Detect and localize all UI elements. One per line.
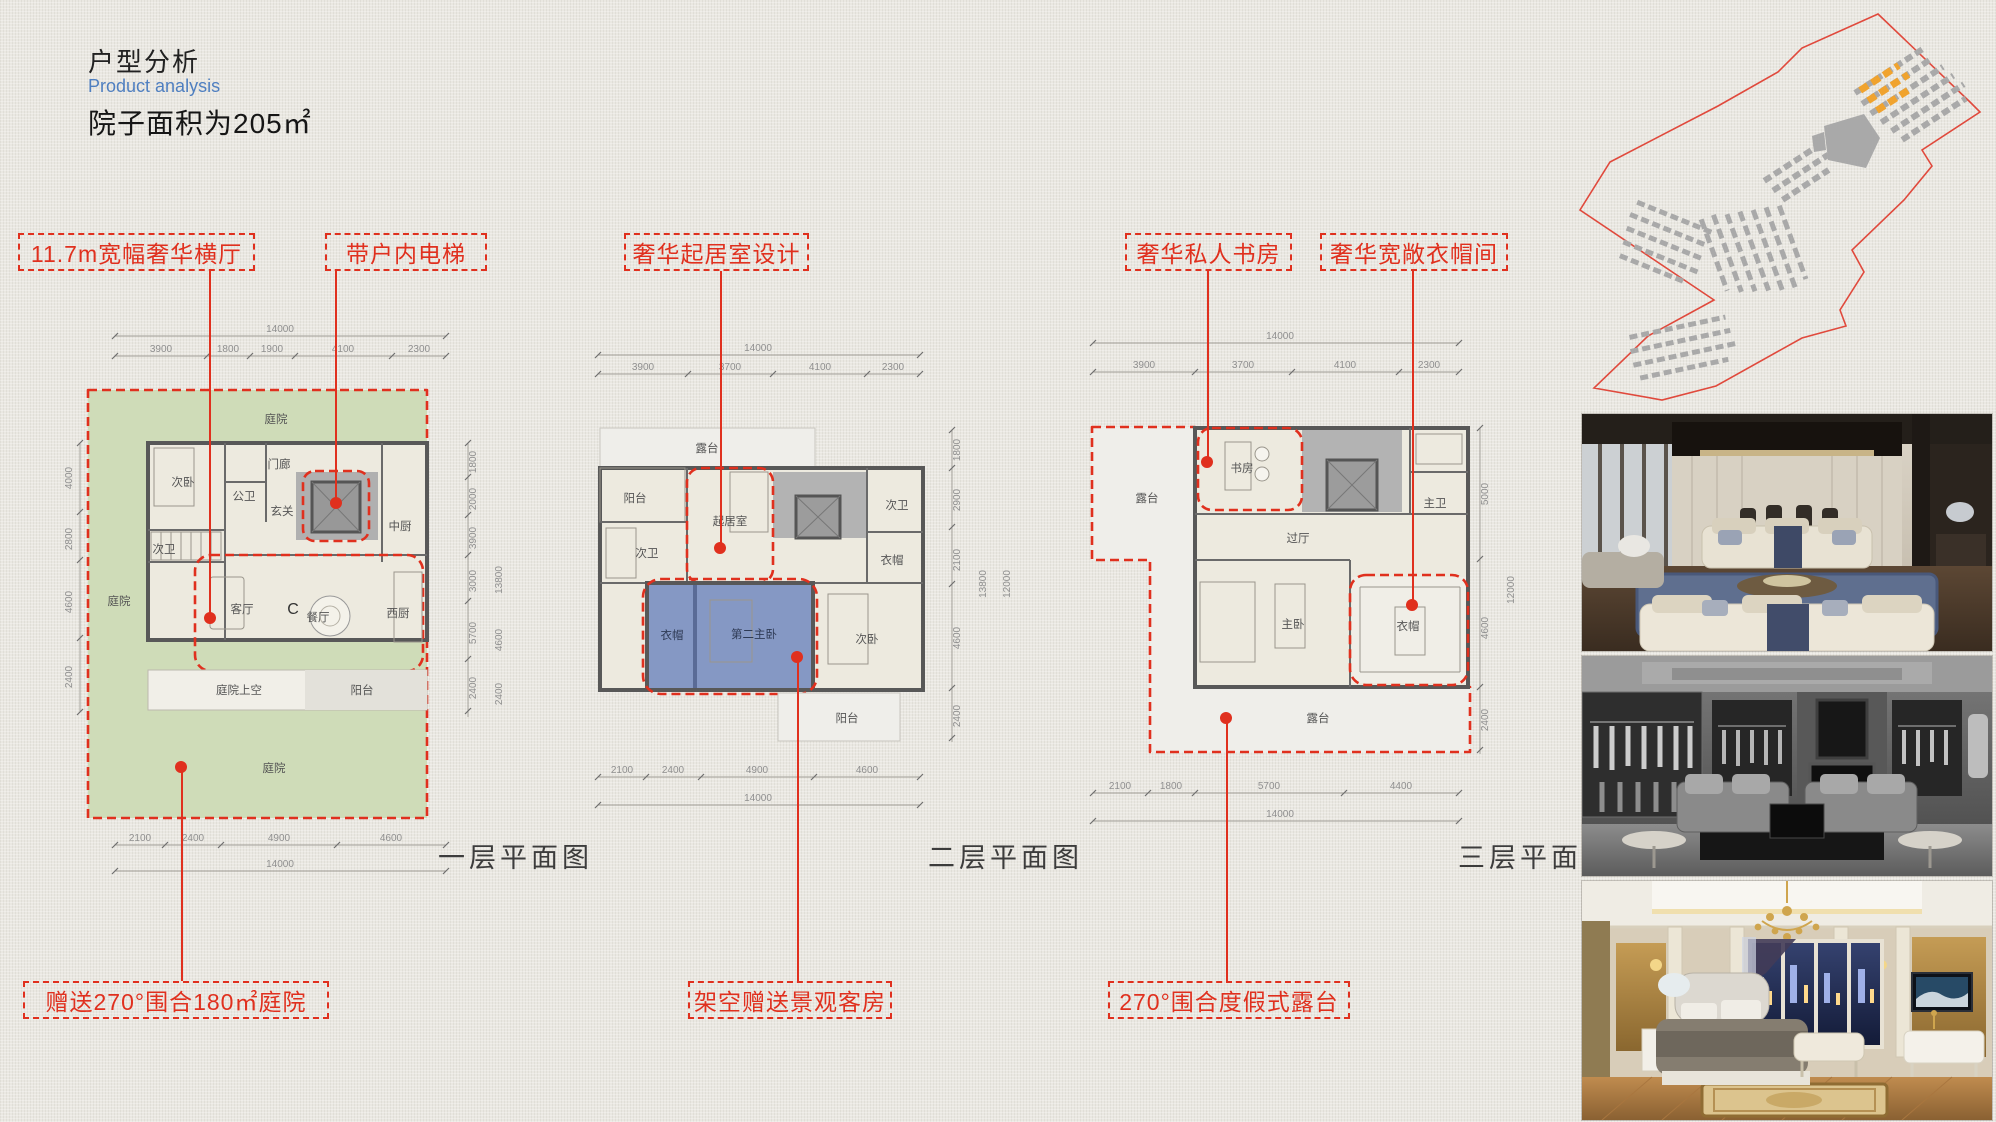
dim-label: 5700	[468, 621, 479, 644]
dim-label: 1800	[468, 450, 479, 473]
dim-label: 14000	[744, 343, 772, 354]
connector-dot	[204, 612, 216, 624]
dim-label: 2300	[408, 344, 431, 355]
dim-label: 12000	[1506, 576, 1517, 604]
dim-label: 2400	[182, 833, 205, 844]
room-label: 玄关	[271, 504, 294, 518]
room-label: 阳台	[836, 711, 859, 725]
connector-line	[1412, 271, 1414, 605]
callout-wide-hall: 11.7m宽幅奢华横厅	[18, 233, 255, 271]
dim-label: 4600	[380, 833, 403, 844]
dim-label: 14000	[266, 859, 294, 870]
photo-cloakroom	[1582, 656, 1992, 876]
room-label: 主卫	[1424, 497, 1447, 510]
dim-label: 14000	[266, 324, 294, 335]
connector-line	[720, 271, 722, 548]
room-label: 庭院	[108, 594, 131, 608]
dim-label: 3900	[1133, 360, 1156, 371]
dim-label: 12000	[1002, 570, 1013, 598]
connector-dot	[1220, 712, 1232, 724]
room-label: 衣帽	[881, 553, 904, 567]
dim-label: 3700	[719, 362, 742, 373]
room-label: 门廊	[268, 457, 291, 471]
dim-label: 2400	[64, 665, 75, 688]
dim-label: 2800	[64, 527, 75, 550]
connector-dot	[1406, 599, 1418, 611]
dim-label: 1800	[952, 438, 963, 461]
dim-label: 4600	[494, 628, 505, 651]
room-label: 第二主卧	[731, 627, 777, 641]
dim-label: 5700	[1258, 781, 1281, 792]
connector-line	[181, 767, 183, 981]
connector-dot	[714, 542, 726, 554]
room-label: 露台	[1307, 711, 1330, 725]
room-label: 餐厅	[307, 610, 330, 624]
photo-bedroom	[1582, 881, 1992, 1120]
room-label: 衣帽	[1397, 619, 1420, 633]
callout-terrace: 270°围合度假式露台	[1108, 981, 1350, 1019]
dim-label: 2100	[1109, 781, 1132, 792]
room-label: 庭院上空	[216, 683, 262, 697]
room-label: 次卫	[153, 542, 176, 556]
room-label: 庭院	[263, 761, 286, 775]
room-label: 阳台	[624, 491, 647, 505]
dim-label: 2400	[662, 765, 685, 776]
dim-label: 2400	[1480, 708, 1491, 731]
dim-label: 2300	[1418, 360, 1441, 371]
dim-label: 4600	[952, 626, 963, 649]
dim-label: 3900	[632, 362, 655, 373]
dim-label: 1900	[261, 344, 284, 355]
connector-line	[1207, 271, 1209, 462]
dim-label: 3700	[1232, 360, 1255, 371]
callout-living-room: 奢华起居室设计	[624, 233, 809, 271]
callout-courtyard-gift: 赠送270°围合180㎡庭院	[23, 981, 329, 1019]
floor-plan-level2: 14000 3900 3700 4100 2300 露台 阳台	[580, 322, 1080, 882]
dim-label: 4600	[1480, 616, 1491, 639]
dim-label: 2100	[129, 833, 152, 844]
room-label: 起居室	[713, 514, 748, 528]
floor-plan-level3: 14000 3900 3700 4100 2300 露台	[1080, 322, 1596, 882]
room-label: 主卧	[1282, 618, 1305, 631]
dim-label: 4900	[268, 833, 291, 844]
dim-label: 3000	[468, 569, 479, 592]
caption-level2: 二层平面图	[928, 836, 1083, 875]
room-label: 阳台	[351, 683, 374, 697]
room-label: 中厨	[389, 520, 412, 533]
room-label: 衣帽	[661, 628, 684, 642]
connector-dot	[330, 497, 342, 509]
dim-label: 4000	[64, 466, 75, 489]
room-label: 次卧	[856, 632, 879, 646]
unit-type-label: C	[287, 601, 299, 618]
room-label: 过厅	[1287, 532, 1310, 545]
page-subtitle-en: Product analysis	[88, 76, 220, 97]
room-label: 公卫	[233, 490, 256, 503]
connector-dot	[791, 651, 803, 663]
dim-label: 4600	[856, 765, 879, 776]
dim-label: 2400	[952, 704, 963, 727]
room-label: 客厅	[231, 602, 254, 616]
room-label: 庭院	[265, 412, 288, 426]
dim-label: 4100	[1334, 360, 1357, 371]
callout-elevator: 带户内电梯	[325, 233, 487, 271]
dim-label: 13800	[494, 566, 505, 594]
floor-plan-level1: 14000 3900 1800 1900 4100 2300	[60, 322, 580, 882]
dim-label: 13800	[978, 570, 989, 598]
room-label: 书房	[1231, 462, 1254, 475]
dim-label: 4900	[746, 765, 769, 776]
dim-label: 4100	[809, 362, 832, 373]
tv	[1912, 973, 1972, 1011]
connector-line	[209, 271, 211, 618]
connector-dot	[175, 761, 187, 773]
dim-label: 4600	[64, 590, 75, 613]
connector-line	[797, 657, 799, 981]
callout-cloakroom: 奢华宽敞衣帽间	[1320, 233, 1508, 271]
connector-dot	[1201, 456, 1213, 468]
building-rows	[1614, 41, 1971, 379]
dim-label: 2400	[468, 676, 479, 699]
caption-level1: 一层平面图	[438, 836, 593, 875]
connector-line	[1226, 718, 1228, 981]
room-label: 露台	[696, 441, 719, 455]
room-label: 次卧	[172, 475, 195, 489]
room-label: 次卫	[636, 546, 659, 560]
dim-label: 1800	[1160, 781, 1183, 792]
room-label: 次卫	[886, 498, 909, 512]
room-label: 露台	[1136, 491, 1159, 505]
callout-study: 奢华私人书房	[1125, 233, 1292, 271]
dim-label: 2400	[494, 682, 505, 705]
dim-label: 3900	[150, 344, 173, 355]
callout-guest-room: 架空赠送景观客房	[688, 981, 892, 1019]
site-plan-map	[1566, 8, 1996, 404]
page-title: 户型分析	[88, 42, 200, 79]
connector-line	[335, 271, 337, 503]
dim-label: 2300	[882, 362, 905, 373]
courtyard-area-note: 院子面积为205㎡	[88, 102, 312, 142]
slide-canvas: 户型分析 Product analysis 院子面积为205㎡ 14000 39…	[0, 0, 1996, 1122]
dim-label: 4400	[1390, 781, 1413, 792]
dim-label: 2100	[952, 548, 963, 571]
dim-label: 1800	[217, 344, 240, 355]
dim-label: 2000	[468, 487, 479, 510]
dim-label: 2900	[952, 488, 963, 511]
dim-label: 5000	[1480, 482, 1491, 505]
photo-living-room	[1582, 414, 1992, 651]
dim-label: 14000	[1266, 809, 1294, 820]
dim-label: 3900	[468, 526, 479, 549]
dim-label: 2100	[611, 765, 634, 776]
room-label: 西厨	[387, 607, 410, 620]
clubhouse-footprint	[1812, 114, 1880, 168]
dim-label: 14000	[744, 793, 772, 804]
dim-label: 14000	[1266, 331, 1294, 342]
